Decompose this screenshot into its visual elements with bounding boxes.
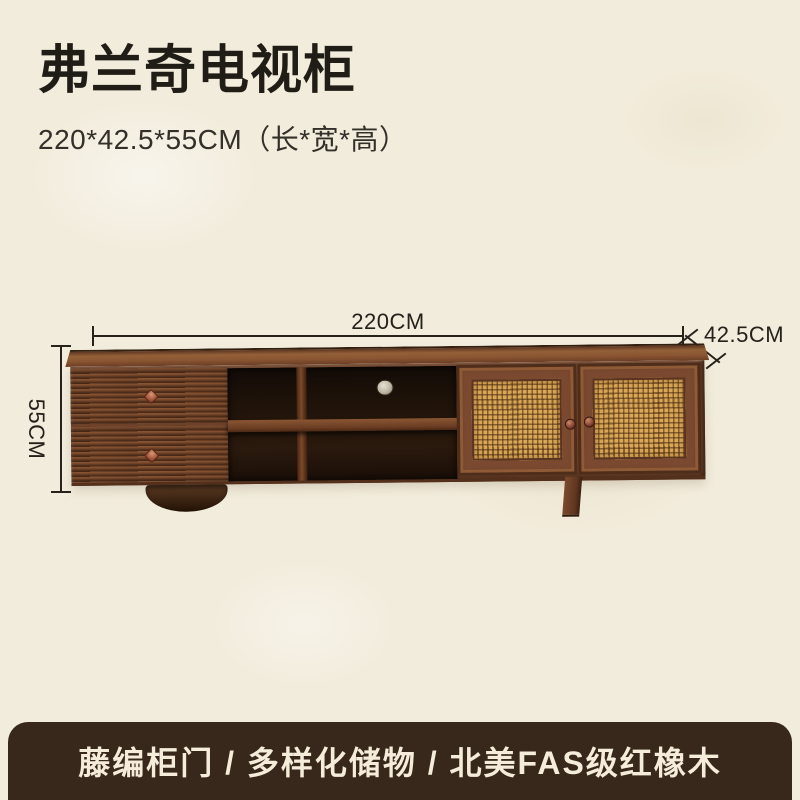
- feature-banner-text: 藤编柜门 / 多样化储物 / 北美FAS级红橡木: [78, 738, 722, 784]
- product-spec-card: 弗兰奇电视柜 220*42.5*55CM（长*宽*高） 220CM 42.5CM…: [0, 0, 800, 800]
- tv-cabinet-image: [65, 337, 713, 526]
- depth-dimension-label: 42.5CM: [704, 322, 784, 348]
- height-dimension-label: 55CM: [23, 383, 49, 475]
- cabinet-drawer-lower: [71, 425, 230, 483]
- feature-banner: 藤编柜门 / 多样化储物 / 北美FAS级红橡木: [8, 722, 792, 800]
- open-shelf-compartments: [227, 366, 457, 481]
- cabinet-side-edge: [698, 360, 705, 475]
- round-foot: [146, 484, 228, 512]
- middle-shelf: [228, 418, 457, 432]
- door-knob: [584, 416, 595, 427]
- panel-leg: [562, 477, 582, 517]
- rattan-panel: [471, 379, 562, 461]
- cabinet-body: [70, 360, 705, 486]
- rattan-panel: [592, 378, 686, 460]
- rattan-door-right: [577, 362, 701, 474]
- cable-hole: [376, 380, 393, 396]
- drawer-knob: [144, 448, 160, 464]
- rattan-door-left: [456, 364, 577, 476]
- cabinet-drawer-upper: [70, 367, 229, 424]
- door-knob: [565, 419, 576, 430]
- width-dimension-label: 220CM: [93, 309, 683, 335]
- drawer-knob: [143, 389, 159, 405]
